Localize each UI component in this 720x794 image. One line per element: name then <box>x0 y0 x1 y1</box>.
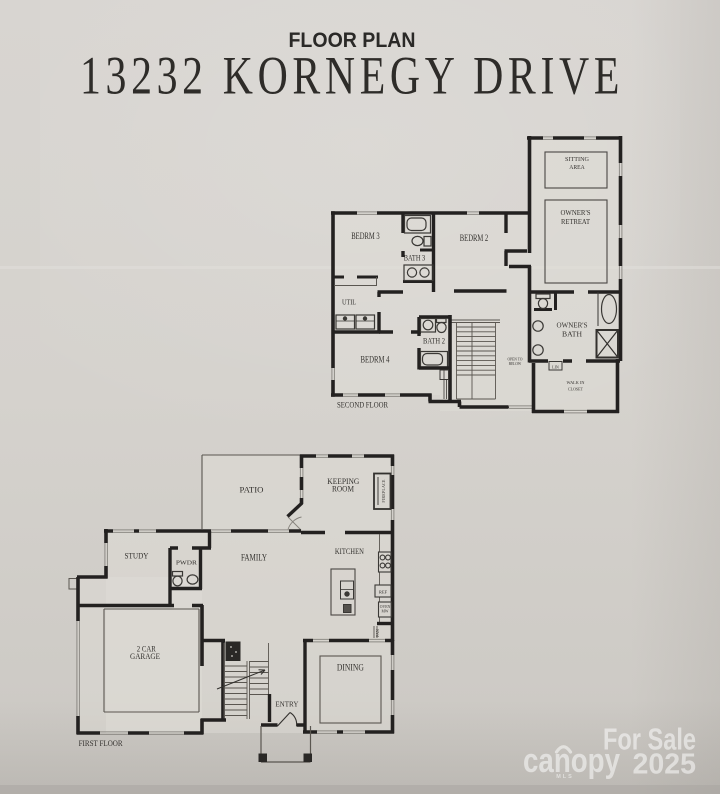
svg-text:OVEN: OVEN <box>380 605 391 609</box>
svg-text:ROOM: ROOM <box>332 485 354 494</box>
svg-text:PATIO: PATIO <box>240 485 264 495</box>
svg-text:GARAGE: GARAGE <box>130 651 160 661</box>
svg-text:UTIL: UTIL <box>342 298 356 307</box>
svg-text:FIRST FLOOR: FIRST FLOOR <box>79 738 123 748</box>
svg-text:BEDRM 4: BEDRM 4 <box>361 355 390 365</box>
svg-text:RETREAT: RETREAT <box>561 217 590 226</box>
svg-text:13232 KORNEGY DRIVE: 13232 KORNEGY DRIVE <box>80 46 624 106</box>
svg-text:OWNER'S: OWNER'S <box>557 321 588 330</box>
svg-text:PWDR: PWDR <box>176 560 198 567</box>
svg-text:SECOND FLOOR: SECOND FLOOR <box>337 400 388 410</box>
svg-text:AREA: AREA <box>569 164 585 171</box>
svg-text:BATH 3: BATH 3 <box>404 253 426 263</box>
svg-text:CLOSET: CLOSET <box>568 387 583 392</box>
svg-text:SITTING: SITTING <box>565 156 589 163</box>
svg-text:WALK IN: WALK IN <box>567 380 586 385</box>
svg-text:FAMILY: FAMILY <box>241 553 267 563</box>
svg-text:ENTRY: ENTRY <box>275 699 299 708</box>
svg-text:STUDY: STUDY <box>125 551 149 561</box>
svg-text:BATH: BATH <box>562 330 583 339</box>
svg-text:2025: 2025 <box>633 749 697 781</box>
svg-text:PAN: PAN <box>375 629 380 637</box>
svg-text:KITCHEN: KITCHEN <box>335 546 364 556</box>
svg-text:OWNER'S: OWNER'S <box>561 208 591 217</box>
svg-text:FIREPLACE: FIREPLACE <box>381 479 386 502</box>
svg-text:BEDRM 3: BEDRM 3 <box>351 231 380 241</box>
svg-text:BATH 2: BATH 2 <box>423 336 445 346</box>
svg-text:MLS: MLS <box>556 774 574 780</box>
svg-text:BEDRM 2: BEDRM 2 <box>460 233 489 243</box>
svg-text:LIN: LIN <box>552 365 559 370</box>
svg-text:REF: REF <box>379 590 388 595</box>
svg-text:MW: MW <box>382 610 389 614</box>
svg-text:DINING: DINING <box>337 663 364 673</box>
svg-text:BELOW: BELOW <box>509 361 522 366</box>
